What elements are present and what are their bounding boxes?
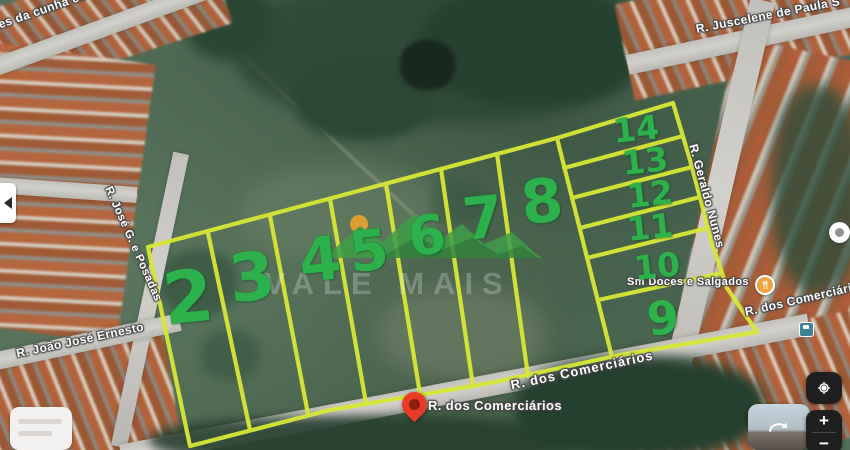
lot-number-4: 4 (296, 228, 344, 292)
lot-number-7: 7 (460, 187, 506, 249)
bus-stop-icon[interactable] (799, 322, 814, 337)
satellite-map[interactable]: VALE MAIS ves da cunha co R. Juscelene d… (0, 0, 850, 450)
fork-knife-icon (760, 280, 770, 290)
carousel-prev-button[interactable] (0, 183, 16, 223)
zoom-control: + − (806, 410, 842, 450)
lot-number-5: 5 (347, 222, 392, 282)
lot-number-8: 8 (518, 170, 566, 234)
lot-number-2: 2 (159, 259, 216, 336)
lot-number-10: 10 (632, 247, 681, 285)
lot-number-6: 6 (405, 207, 448, 265)
food-poi-icon[interactable] (755, 275, 775, 295)
lot-number-14: 14 (611, 110, 660, 148)
rotate-view-icon (767, 419, 791, 435)
card-line (18, 419, 62, 424)
lot-number-3: 3 (226, 243, 279, 313)
mini-info-card[interactable] (10, 407, 72, 450)
zoom-out-button[interactable]: − (806, 433, 842, 450)
poi-marker-circle[interactable] (829, 222, 850, 243)
pin-street-label: R. dos Comerciários (428, 398, 562, 413)
lot-number-9: 9 (645, 293, 682, 342)
street-view-thumbnail[interactable] (748, 404, 810, 450)
my-location-icon (816, 380, 832, 396)
zoom-in-button[interactable]: + (806, 410, 842, 432)
card-line (18, 431, 52, 436)
my-location-button[interactable] (806, 372, 842, 404)
lot-divider (557, 138, 612, 357)
